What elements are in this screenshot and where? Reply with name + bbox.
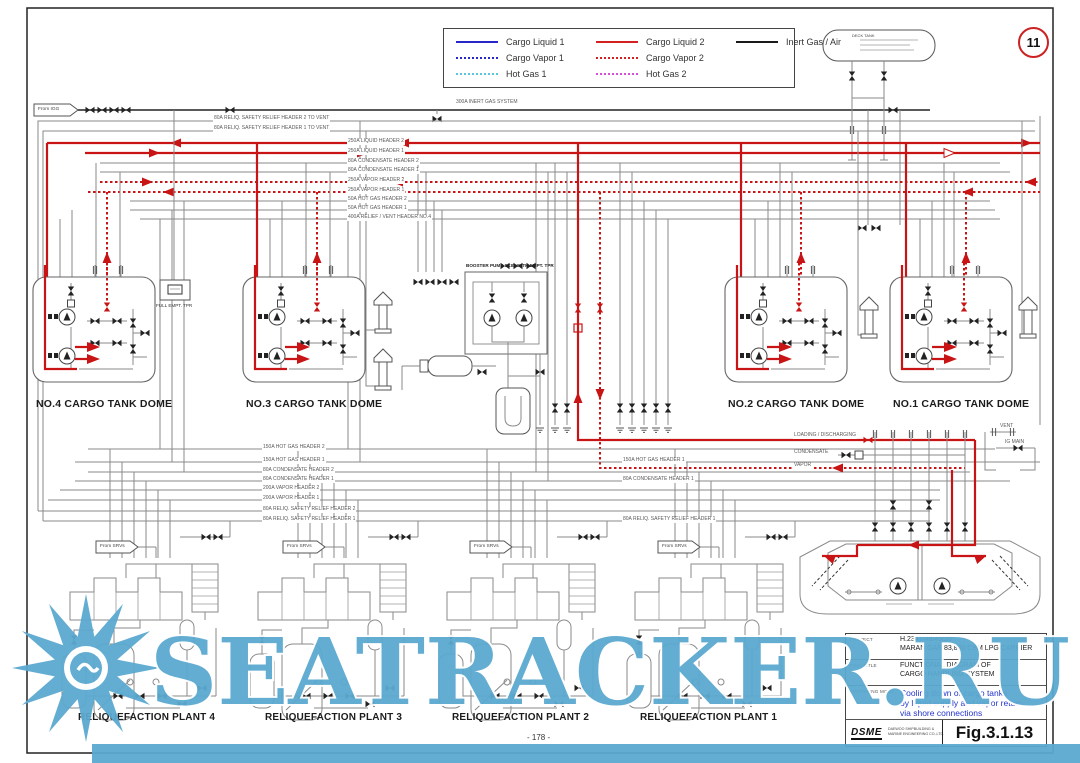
sheet-number-badge: 11 <box>1018 27 1049 58</box>
cargo-tank-dome-3 <box>243 263 365 382</box>
cargo-tank-dome-2 <box>725 263 847 382</box>
legend-label: Cargo Liquid 1 <box>506 37 565 47</box>
loading-discharging-label: LOADING / DISCHARGING <box>793 433 857 439</box>
dome-1-label: NO.1 CARGO TANK DOME <box>893 398 1029 410</box>
project-number: H.2347/48/49/20 <box>900 636 1032 645</box>
reliq-plant-1 <box>627 564 783 720</box>
full-empt-tpr-label: FULL EMPT. TPR <box>156 303 192 308</box>
mid-header-label: 150A HOT GAS HEADER 1 <box>262 458 326 464</box>
legend-line-inert-gas <box>736 41 778 43</box>
header-label: 250A LIQUID HEADER 2 <box>347 139 405 145</box>
title-block: PROJECT H.2347/48/49/20 MARAN GAS 83,800… <box>845 633 1047 747</box>
legend-line-cargo-liquid-2 <box>596 41 638 43</box>
flow-tee <box>944 149 955 158</box>
mid-header-label: 150A HOT GAS HEADER 2 <box>262 445 326 451</box>
header-label: 400A RELIEF / VENT HEADER NO.4 <box>347 215 432 221</box>
mid-header-label: 200A VAPOR HEADER 2 <box>262 486 320 492</box>
mode-line1: Cooling down of cargo tanks <box>900 688 1023 698</box>
header-label: 250A VAPOR HEADER 2 <box>347 178 405 184</box>
mid-header-label: 80A CONDENSATE HEADER 2 <box>262 468 335 474</box>
mode-line3: via shore connections <box>900 708 1023 718</box>
condensate-label: CONDENSATE <box>793 450 829 456</box>
ig-main-label: IG MAIN <box>1005 440 1024 446</box>
company-name: DAEWOO SHIPBUILDING & MARINE ENGINEERING… <box>888 727 944 736</box>
project-label: PROJECT <box>850 637 873 642</box>
reliq-plant-2 <box>439 564 595 720</box>
from-srvs-flag-label: From SRVs <box>100 544 125 549</box>
legend-label: Inert Gas / Air <box>786 37 841 47</box>
legend-label: Hot Gas 1 <box>506 69 547 79</box>
vent-label: VENT <box>1000 424 1013 430</box>
ship-cross-section <box>800 440 1040 614</box>
cargo-tank-dome-1 <box>890 263 1012 382</box>
plant-1-label: RELIQUEFACTION PLANT 1 <box>640 712 777 723</box>
drawing-sheet: Cargo Liquid 1 Cargo Vapor 1 Hot Gas 1 C… <box>0 0 1080 763</box>
mode-line2: by liquid supply and vapor return <box>900 698 1023 708</box>
vapor-label: VAPOR <box>793 463 812 469</box>
from-srvs-flag-label: From SRVs <box>474 544 499 549</box>
plant-3-label: RELIQUEFACTION PLANT 3 <box>265 712 402 723</box>
legend-line-cargo-liquid-1 <box>456 41 498 43</box>
booster-pump-skid <box>465 272 547 375</box>
dome-4-label: NO.4 CARGO TANK DOME <box>36 398 172 410</box>
header-label: 250A VAPOR HEADER 1 <box>347 188 405 194</box>
full-empt-tpr <box>160 280 190 300</box>
from-srvs-flag-label: From SRVs <box>662 544 687 549</box>
dome-3-label: NO.3 CARGO TANK DOME <box>246 398 382 410</box>
header-label-relief-2: 80A RELIQ. SAFETY RELIEF HEADER 2 TO VEN… <box>213 116 330 122</box>
deck-tank-label: DECK TANK <box>852 34 875 38</box>
booster-skid-label: BOOSTER PUMP SKID WITH EMPT. TPR <box>466 263 554 268</box>
dsme-logo: DSME <box>851 727 882 740</box>
legend-line-cargo-vapor-2 <box>596 57 638 59</box>
dwg-title-label: DWG TITLE <box>850 663 877 668</box>
legend-label: Cargo Liquid 2 <box>646 37 705 47</box>
center-vessel <box>496 388 530 434</box>
from-srvs-flag-label: From SRVs <box>287 544 312 549</box>
page-number: - 178 - <box>527 733 550 742</box>
header-label: 80A CONDENSATE HEADER 1 <box>347 168 420 174</box>
project-value: H.2347/48/49/20 MARAN GAS 83,800 CBM LPG… <box>900 636 1032 654</box>
dwg-title-line1: FUNCTIONAL DIAGRAM OF <box>900 662 995 671</box>
header-label: 80A CONDENSATE HEADER 2 <box>347 159 420 165</box>
mid-header-label-right: 150A HOT GAS HEADER 1 <box>622 458 686 464</box>
legend-line-cargo-vapor-1 <box>456 57 498 59</box>
legend-line-hot-gas-2 <box>596 73 638 75</box>
reliq-plant-3 <box>250 564 406 720</box>
mid-header-label: 80A CONDENSATE HEADER 1 <box>262 477 335 483</box>
plant-feeds <box>96 449 795 558</box>
plant-2-label: RELIQUEFACTION PLANT 2 <box>452 712 589 723</box>
header-label: 50A HOT GAS HEADER 2 <box>347 197 408 203</box>
dome-2-label: NO.2 CARGO TANK DOME <box>728 398 864 410</box>
mid-header-label: 200A VAPOR HEADER 1 <box>262 496 320 502</box>
mid-header-label: 80A RELIQ. SAFETY RELIEF HEADER 1 <box>262 517 356 523</box>
header-label: 50A HOT GAS HEADER 1 <box>347 206 408 212</box>
header-label: 250A LIQUID HEADER 1 <box>347 149 405 155</box>
mid-header-label-right: 80A RELIQ. SAFETY RELIEF HEADER 1 <box>622 517 716 523</box>
dwg-title-line2: CARGO HANDLING SYSTEM <box>900 671 995 680</box>
header-label-inert-gas: 300A INERT GAS SYSTEM <box>455 100 519 106</box>
legend-label: Cargo Vapor 2 <box>646 53 704 63</box>
mid-header-lines <box>38 449 1040 521</box>
mid-header-label: 80A RELIQ. SAFETY RELIEF HEADER 2 <box>262 507 356 513</box>
legend-label: Hot Gas 2 <box>646 69 687 79</box>
dwg-title-value: FUNCTIONAL DIAGRAM OF CARGO HANDLING SYS… <box>900 662 995 680</box>
project-ship: MARAN GAS 83,800 CBM LPG CARRIER <box>900 645 1032 654</box>
plant-4-label: RELIQUEFACTION PLANT 4 <box>78 712 215 723</box>
from-igg-flag-label: From IGG <box>38 107 59 112</box>
cargo-tank-dome-4 <box>33 263 155 382</box>
company-line2: MARINE ENGINEERING CO.,LTD. <box>888 732 944 737</box>
header-label-relief-1: 80A RELIQ. SAFETY RELIEF HEADER 1 TO VEN… <box>213 126 330 132</box>
legend-box: Cargo Liquid 1 Cargo Vapor 1 Hot Gas 1 C… <box>443 28 795 88</box>
inert-gas-line <box>34 104 930 122</box>
operating-mode-value: Cooling down of cargo tanks by liquid su… <box>900 688 1023 719</box>
operating-mode-label: OPERATING MODE <box>850 689 895 694</box>
legend-label: Cargo Vapor 1 <box>506 53 564 63</box>
mid-header-label-right: 80A CONDENSATE HEADER 1 <box>622 477 695 483</box>
reliq-plant-4 <box>62 564 218 720</box>
figure-number: Fig.3.1.13 <box>942 720 1046 746</box>
legend-line-hot-gas-1 <box>456 73 498 75</box>
